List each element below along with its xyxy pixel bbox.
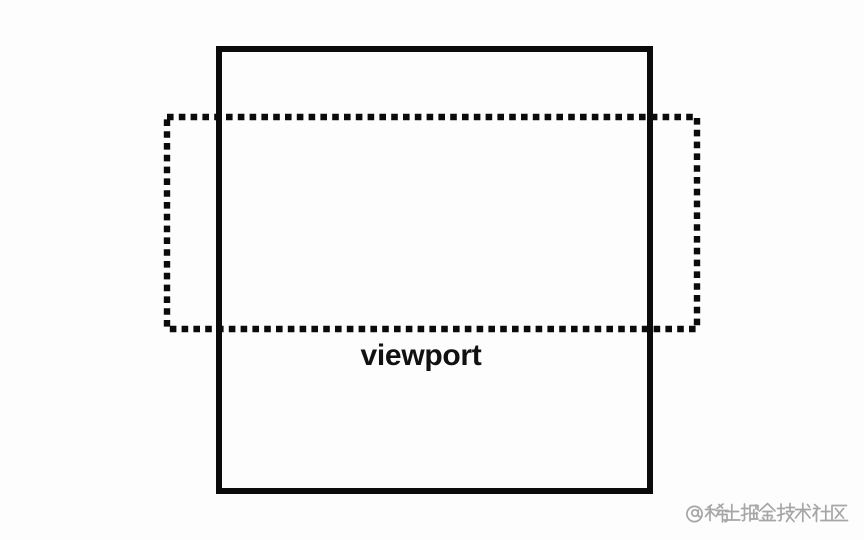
svg-text:viewport: viewport	[361, 339, 482, 372]
